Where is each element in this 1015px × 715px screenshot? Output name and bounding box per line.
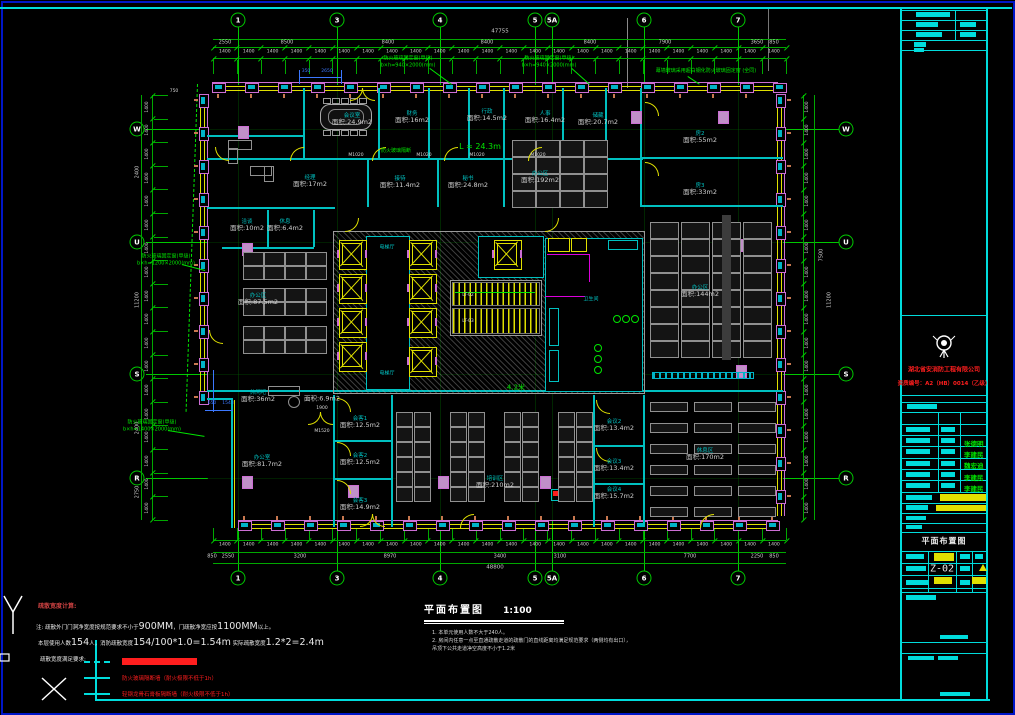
desk	[522, 442, 539, 457]
sink-counter-icon	[549, 308, 559, 346]
facade-tick	[448, 94, 450, 98]
annotation: L = 24.3m	[459, 142, 501, 152]
facade-tick	[194, 198, 198, 200]
desk	[396, 487, 413, 502]
counter-stripes	[652, 372, 754, 379]
dim-text: 1400	[806, 196, 810, 207]
desk	[264, 166, 274, 182]
titleblock-rule	[902, 532, 987, 533]
legend-calc-segment: 154/100*1.0=1.54m	[133, 637, 231, 648]
grid-bubble: 1	[231, 571, 246, 586]
desk	[743, 256, 772, 273]
blue-dim-text: 2650	[321, 70, 332, 75]
desk	[504, 442, 521, 457]
room-label: 培训区面积:210m2	[476, 476, 514, 490]
facade-glass	[571, 523, 578, 527]
cad-sheet: 113344555A5A6677WWUUSSRR4775525508500840…	[0, 0, 1015, 715]
dim-text: 1400	[146, 266, 150, 277]
dim-text: 1400	[806, 337, 810, 348]
desk	[414, 472, 431, 487]
legend-item-text: 防火玻璃隔断墙（耐火极限不低于1h）	[122, 674, 217, 682]
facade-glass	[201, 130, 205, 137]
door-arc-icon	[645, 162, 659, 176]
facade-tick	[441, 516, 443, 520]
dim-text: 1400	[601, 544, 613, 549]
facade-tick	[787, 264, 791, 266]
wall-yellow	[234, 400, 235, 528]
room-label: 办公区面积:144m2	[681, 285, 719, 299]
room-area: 面积:6.4m2	[267, 225, 303, 232]
facade-glass	[736, 523, 743, 527]
titleblock-yellow-bar	[934, 577, 952, 584]
caption-note-line: 吊顶下公共走道净空高度不小于1.2米	[432, 645, 754, 653]
dim-text: 1400	[601, 51, 613, 56]
titleblock-rule	[902, 523, 987, 524]
dim-text: 2750	[136, 486, 141, 499]
dim-text: 1400	[146, 361, 150, 372]
titleblock-rule	[972, 551, 973, 592]
dim-text: 1400	[315, 51, 327, 56]
core-label: 卫生间	[583, 298, 598, 303]
room-area: 面积:13.4m2	[594, 465, 634, 472]
signature-name: 张德明	[964, 438, 984, 448]
dim-text: 2550	[222, 555, 235, 560]
facade-glass	[201, 295, 205, 302]
door-tag: LT-03	[462, 320, 474, 325]
toilet-fixture-icon	[631, 315, 639, 323]
desk	[243, 326, 264, 340]
pantry-icon	[571, 238, 587, 252]
grid-bubble: 3	[330, 13, 345, 28]
dim-ext-line	[237, 60, 238, 74]
facade-line-yellow	[212, 86, 778, 87]
desk	[396, 442, 413, 457]
titleblock-rule	[902, 592, 987, 593]
blue-dim-text: 350	[302, 70, 311, 75]
dim-ext-line	[762, 60, 763, 74]
dim-text: 1400	[146, 219, 150, 230]
desk	[414, 442, 431, 457]
wall	[503, 160, 505, 207]
blue-dim-line	[341, 70, 342, 84]
facade-glass	[201, 262, 205, 269]
desk	[450, 487, 467, 502]
desk	[522, 472, 539, 487]
dim-text: 1400	[362, 544, 374, 549]
dim-ext-line	[452, 60, 453, 74]
desk	[560, 157, 584, 174]
dim-ext-line	[154, 449, 168, 450]
titleblock-rule	[902, 315, 987, 316]
dim-ext-line	[500, 528, 501, 540]
facade-glass	[778, 262, 782, 269]
dim-line	[141, 95, 142, 520]
room-label: 财务面积:16m2	[395, 111, 429, 125]
facade-glass	[248, 85, 255, 89]
room-label: 办公区面积:87.5m2	[238, 293, 278, 307]
annotation-line: b×h=940×2000(mm)	[522, 62, 577, 69]
grid-bubble: 1	[231, 13, 246, 28]
facade-glass	[314, 85, 321, 89]
desk	[694, 423, 732, 433]
desk	[576, 457, 593, 472]
facade-glass	[778, 97, 782, 104]
desk	[522, 487, 539, 502]
wall	[222, 247, 314, 249]
dim-ext-line	[154, 378, 168, 379]
grid-bubble: 7	[731, 13, 746, 28]
door-tag: M1020	[416, 154, 431, 159]
desk	[681, 341, 710, 358]
facade-glass	[439, 523, 446, 527]
table-icon	[288, 396, 300, 408]
desk	[264, 266, 285, 280]
facade-tick	[194, 165, 198, 167]
axis-line	[146, 478, 208, 479]
signature-name: 李建民	[964, 483, 984, 493]
room-area: 面积:33m2	[683, 189, 717, 196]
dim-text: 1400	[146, 384, 150, 395]
dim-text: 1400	[146, 455, 150, 466]
dim-ext-line	[356, 60, 357, 74]
grid-bubble: R	[130, 471, 145, 486]
dim-text: 1400	[434, 51, 446, 56]
room-area: 面积:192m2	[521, 177, 559, 184]
toilet-fixture-icon	[622, 315, 630, 323]
dim-text: 1400	[806, 408, 810, 419]
dim-text: 1400	[720, 51, 732, 56]
wall	[437, 160, 439, 207]
facade-glass	[215, 85, 222, 89]
desk	[306, 266, 327, 280]
titleblock-label-bar	[906, 595, 936, 600]
titleblock-label-bar	[906, 516, 926, 520]
desk	[650, 507, 688, 517]
grid-bubble: S	[839, 367, 854, 382]
dim-text: 850	[207, 555, 217, 560]
facade-tick	[787, 363, 791, 365]
facade-glass	[710, 85, 717, 89]
desk	[650, 273, 679, 290]
legend-heading: 疏散宽度计算:	[38, 601, 76, 610]
legend-swatch-line	[84, 661, 110, 663]
titleblock-label-bar	[941, 483, 955, 488]
titleblock-label-bar	[916, 32, 942, 37]
facade-tick	[474, 516, 476, 520]
axis-line	[738, 27, 739, 85]
dim-ext-line	[500, 60, 501, 74]
facade-glass	[380, 85, 387, 89]
dim-text: 1400	[243, 544, 255, 549]
leader-line	[687, 76, 700, 85]
dim-text: 1400	[806, 266, 810, 277]
dim-ext-line	[154, 473, 168, 474]
room-area: 面积:170m2	[686, 454, 724, 461]
desk	[306, 326, 327, 340]
facade-glass	[340, 523, 347, 527]
facade-glass	[778, 328, 782, 335]
facade-glass	[778, 130, 782, 137]
annotation: 防火玻璃固定窗(甲级)b×h=940×2000(mm)	[522, 56, 577, 69]
elevator-jamb	[365, 250, 367, 258]
desk	[450, 427, 467, 442]
dim-text: 1400	[146, 502, 150, 513]
caption-notes: 1. 本单元使用人数不大于240人。2. 房间内任意一点至直通疏散走道的疏散门的…	[432, 629, 754, 653]
desk	[306, 340, 327, 354]
dim-ext-line	[476, 60, 477, 74]
grid-bubble: 5A	[545, 13, 560, 28]
titleblock-label-bar	[940, 635, 968, 639]
axis-line	[783, 478, 840, 479]
room-area: 面积:14.9m2	[340, 504, 380, 511]
facade-tick	[283, 94, 285, 98]
titleblock-rule	[902, 700, 987, 701]
desk	[650, 465, 688, 475]
titleblock-rule	[902, 503, 987, 504]
titleblock-rule	[902, 575, 987, 576]
plan-caption-scale: 1:100	[503, 606, 532, 616]
wall	[333, 440, 393, 442]
room-area: 面积:144m2	[681, 291, 719, 298]
facade-tick	[342, 516, 344, 520]
dim-total: 47755	[491, 29, 509, 35]
facade-glass	[611, 85, 618, 89]
dim-text: 1400	[146, 196, 150, 207]
dim-text: 1400	[506, 544, 518, 549]
titleblock-rule	[902, 435, 987, 436]
dim-ext-line	[154, 213, 168, 214]
facade-tick	[382, 94, 384, 98]
desk	[243, 252, 264, 266]
wall	[640, 205, 783, 207]
dim-text: 1400	[529, 544, 541, 549]
dim-text: 3100	[554, 555, 567, 560]
dim-text: 1400	[146, 125, 150, 136]
elevator-jamb	[365, 352, 367, 360]
grid-bubble: 7	[731, 571, 746, 586]
core-label: 电梯厅	[379, 246, 394, 251]
wall	[313, 210, 315, 247]
desk	[743, 239, 772, 256]
axis-line	[146, 374, 208, 375]
desk	[681, 222, 710, 239]
dim-text: 1400	[458, 51, 470, 56]
room-area: 面积:36m2	[241, 396, 275, 403]
dim-text: 1400	[806, 101, 810, 112]
desk	[576, 427, 593, 442]
blue-dim-text: 650	[208, 402, 217, 407]
desk	[468, 412, 485, 427]
dim-ext-line	[452, 528, 453, 540]
leader-line	[168, 430, 205, 437]
elevator-jamb	[435, 284, 437, 292]
room-area: 面积:15.7m2	[594, 493, 634, 500]
desk	[576, 472, 593, 487]
titleblock-yellow-bar	[936, 505, 986, 511]
wall	[333, 478, 393, 480]
desk	[285, 340, 306, 354]
chair-icon	[323, 130, 331, 136]
facade-glass	[545, 85, 552, 89]
desk	[738, 423, 776, 433]
dim-text: 1400	[434, 544, 446, 549]
facade-glass	[201, 361, 205, 368]
legend-calc-segment: 实际疏散宽度	[231, 641, 266, 647]
facade-glass	[406, 523, 413, 527]
axis-line	[783, 242, 840, 243]
facade-glass	[446, 85, 453, 89]
dim-ext-line	[332, 528, 333, 540]
facade-tick	[787, 132, 791, 134]
dim-ext-line	[154, 119, 168, 120]
dim-text: 1400	[649, 51, 661, 56]
titleblock-label-bar	[975, 554, 983, 559]
grid-bubble: 3	[330, 571, 345, 586]
facade-glass	[778, 295, 782, 302]
pantry-icon	[548, 238, 570, 252]
titleblock-rule	[960, 412, 961, 492]
grid-bubble: 5	[528, 571, 543, 586]
room-area: 面积:6.9m2	[304, 395, 340, 402]
chair-icon	[359, 130, 367, 136]
titleblock-label-bar	[914, 48, 924, 52]
dim-text: 1400	[386, 544, 398, 549]
desk	[468, 442, 485, 457]
facade-tick	[514, 94, 516, 98]
dim-text: 1400	[806, 148, 810, 159]
dim-ext-line	[213, 60, 214, 74]
blue-dim-line	[299, 77, 341, 78]
room-label: 会客3面积:14.9m2	[340, 498, 380, 512]
wall	[503, 88, 505, 160]
desk	[558, 457, 575, 472]
column	[540, 476, 551, 489]
dim-text: 3400	[494, 555, 507, 560]
dim-text: 1400	[806, 502, 810, 513]
legend-swatch-line	[84, 677, 110, 679]
titleblock-label-bar	[941, 449, 955, 454]
dim-text: 1400	[146, 408, 150, 419]
titleblock-label-bar	[906, 472, 930, 477]
legend-calc-segment: 疏散宽度满足要求:	[40, 657, 86, 663]
titleblock-label-bar	[906, 438, 930, 443]
dim-ext-line	[643, 60, 644, 74]
grid-bubble: W	[130, 122, 145, 137]
room-label: 休息区面积:170m2	[686, 448, 724, 462]
dim-ext-line	[154, 189, 168, 190]
titleblock-label-bar	[906, 580, 928, 585]
elevator-jamb	[337, 352, 339, 360]
wall	[207, 398, 233, 400]
dim-text: 1400	[806, 384, 810, 395]
drawing-title: 平面布置图	[922, 536, 967, 547]
desk	[738, 507, 776, 517]
facade-tick	[547, 94, 549, 98]
dim-ext-line	[595, 60, 596, 74]
room-area: 面积:14.5m2	[467, 115, 507, 122]
dim-ext-line	[261, 528, 262, 540]
titleblock-rule	[902, 588, 987, 589]
room-label: 储藏面积:20.7m2	[578, 113, 618, 127]
grid-bubble: 6	[637, 13, 652, 28]
facade-tick	[194, 132, 198, 134]
desk	[468, 427, 485, 442]
annotation-line: L = 24.3m	[459, 142, 501, 152]
room-area: 面积:11.4m2	[380, 182, 420, 189]
facade-tick	[540, 516, 542, 520]
chair-icon	[332, 98, 340, 104]
desk	[560, 191, 584, 208]
room-label: 会议3面积:13.4m2	[594, 459, 634, 473]
dim-ext-line	[154, 166, 168, 167]
desk	[504, 412, 521, 427]
room-label: 会议2面积:13.4m2	[594, 419, 634, 433]
elevator-jamb	[337, 284, 339, 292]
core-label: 电梯厅	[379, 372, 394, 377]
room-label: 秘书面积:24.8m2	[448, 176, 488, 190]
facade-tick	[194, 396, 198, 398]
dim-text: 1400	[625, 544, 637, 549]
facade-tick	[712, 94, 714, 98]
company-logo-icon	[930, 331, 958, 359]
titleblock-rule	[938, 412, 939, 492]
axis-line	[783, 374, 840, 375]
dim-ext-line	[154, 237, 168, 238]
dim-text: 1400	[577, 544, 589, 549]
dim-text: 2550	[219, 41, 232, 46]
elevator-jamb	[407, 318, 409, 326]
titleblock-rule	[956, 551, 957, 592]
dim-text: 7500	[820, 249, 825, 262]
desk	[738, 465, 776, 475]
titleblock-rule	[928, 551, 929, 592]
facade-tick	[787, 429, 791, 431]
chair-icon	[350, 130, 358, 136]
dim-text: 1400	[806, 314, 810, 325]
room-area: 面积:10m2	[230, 225, 264, 232]
titleblock-label-bar	[960, 566, 970, 571]
wall	[643, 395, 645, 527]
dim-text: 1400	[362, 51, 374, 56]
facade-tick	[415, 94, 417, 98]
desk	[264, 340, 285, 354]
annotation-line: 防火玻璃隔断	[381, 148, 411, 155]
desk	[738, 444, 776, 454]
dim-text: 1400	[577, 51, 589, 56]
facade-tick	[507, 516, 509, 520]
desk	[694, 465, 732, 475]
dim-text: 1400	[219, 544, 231, 549]
chair-icon	[341, 98, 349, 104]
dim-text: 1400	[146, 148, 150, 159]
annotation-line: 防火玻璃固定窗(甲级)	[381, 56, 436, 63]
titleblock-label-bar	[916, 22, 938, 27]
certificate-number: 资质编号：A2（HB）0014（乙级）	[898, 379, 991, 387]
dim-text: 1400	[625, 51, 637, 56]
desk	[504, 457, 521, 472]
desk	[681, 307, 710, 324]
facade-glass	[644, 85, 651, 89]
annotation: 4.2米	[507, 383, 525, 392]
dim-text: 1400	[806, 125, 810, 136]
dim-text: 1400	[291, 544, 303, 549]
facade-tick	[309, 516, 311, 520]
dim-ext-line	[714, 528, 715, 540]
titleblock-rule	[902, 402, 987, 403]
dim-text: 1400	[146, 101, 150, 112]
titleblock-rule	[902, 10, 987, 11]
dim-text: 1400	[806, 432, 810, 443]
